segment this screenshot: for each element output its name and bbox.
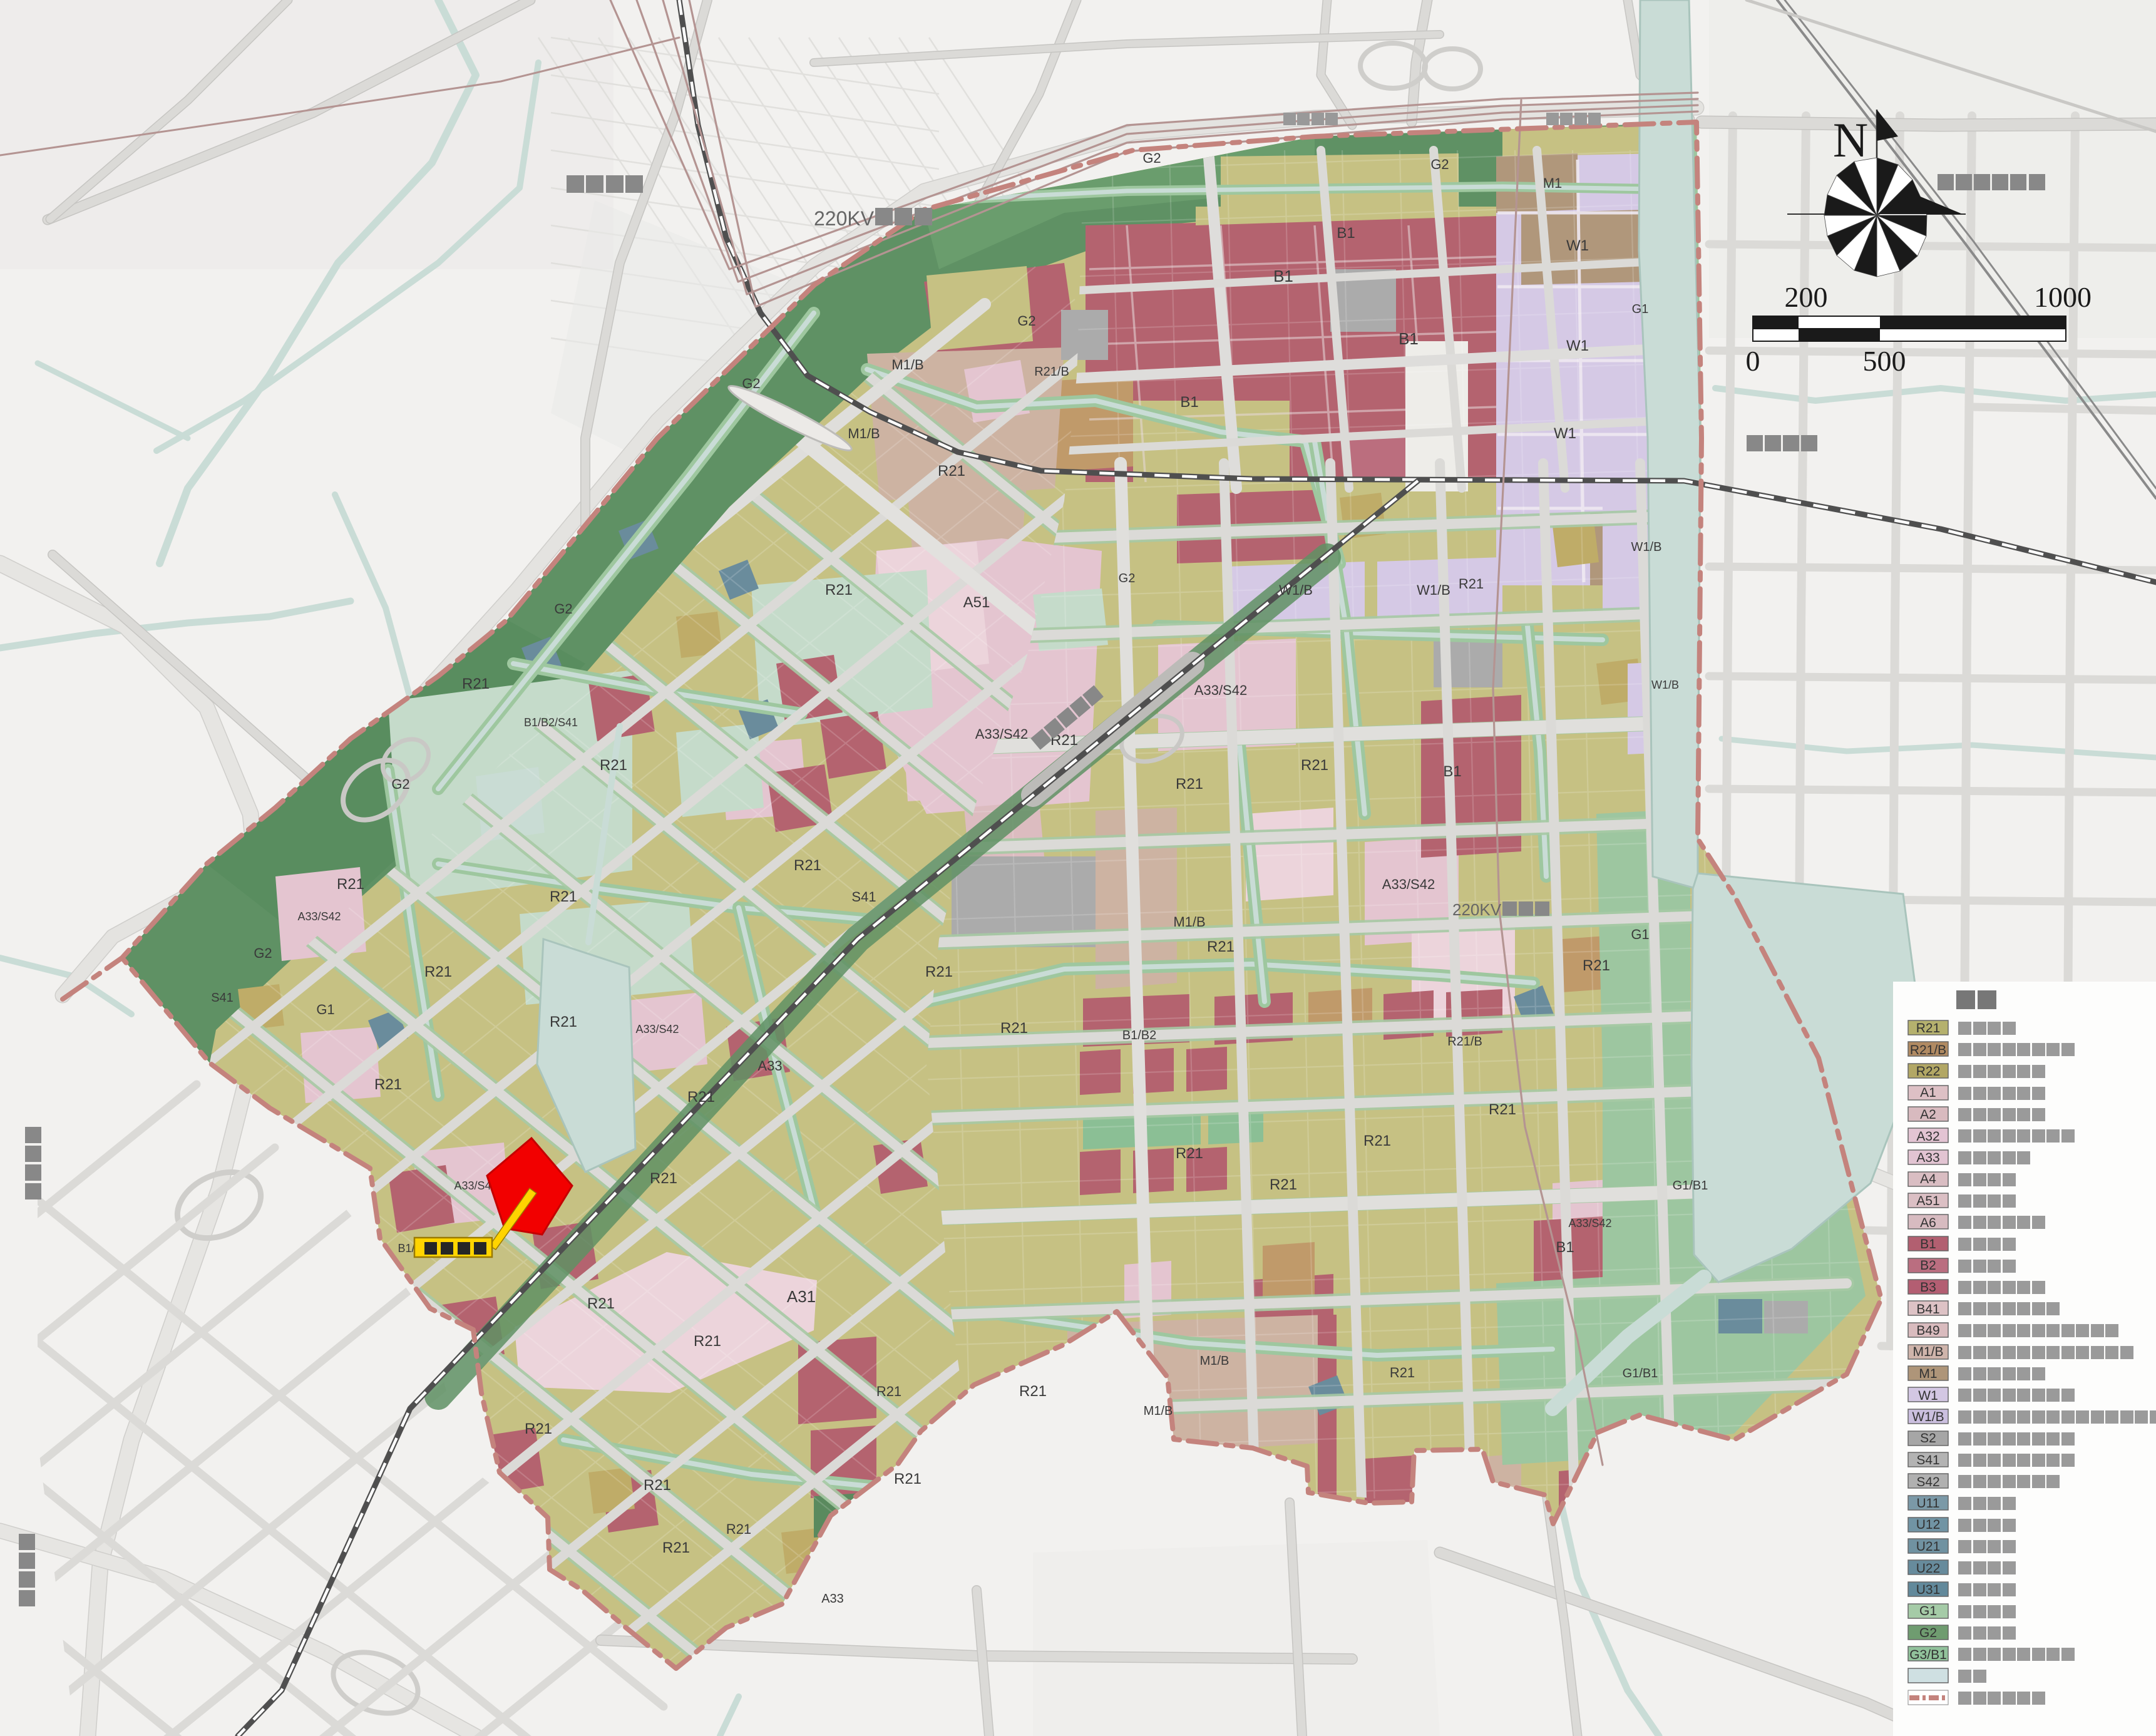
svg-text:G1: G1 xyxy=(316,1002,334,1017)
svg-text:R21: R21 xyxy=(938,463,965,480)
svg-text:R21: R21 xyxy=(662,1539,690,1556)
svg-text:G2: G2 xyxy=(1142,150,1161,166)
svg-text:500: 500 xyxy=(1863,345,1906,377)
svg-text:A32: A32 xyxy=(1916,1129,1939,1144)
svg-text:M1: M1 xyxy=(1543,175,1563,191)
svg-text:R21: R21 xyxy=(1270,1176,1297,1193)
svg-text:G1/B1: G1/B1 xyxy=(1673,1179,1708,1193)
svg-text:A51: A51 xyxy=(1916,1194,1939,1208)
svg-text:A33/S42: A33/S42 xyxy=(635,1023,679,1035)
svg-text:B1: B1 xyxy=(1920,1237,1936,1251)
svg-text:S41: S41 xyxy=(851,889,876,905)
svg-text:R21: R21 xyxy=(1301,757,1328,774)
svg-text:A33/S42: A33/S42 xyxy=(297,910,341,923)
svg-text:R21: R21 xyxy=(687,1089,715,1106)
svg-text:G1: G1 xyxy=(1631,927,1649,942)
svg-text:R21: R21 xyxy=(424,963,452,980)
svg-text:R21: R21 xyxy=(694,1333,721,1350)
svg-text:M1/B: M1/B xyxy=(1200,1354,1229,1368)
svg-text:G1/B1: G1/B1 xyxy=(1623,1367,1658,1380)
svg-text:W1/B: W1/B xyxy=(1651,679,1679,691)
svg-text:M1/B: M1/B xyxy=(1144,1404,1173,1418)
svg-text:R21: R21 xyxy=(525,1420,552,1437)
svg-text:N: N xyxy=(1833,113,1868,167)
svg-text:W1/B: W1/B xyxy=(1912,1410,1944,1424)
svg-text:A1: A1 xyxy=(1920,1086,1936,1100)
svg-text:R21: R21 xyxy=(374,1076,402,1093)
svg-text:R21: R21 xyxy=(1459,576,1484,592)
svg-text:R21: R21 xyxy=(1489,1101,1516,1118)
svg-text:R21: R21 xyxy=(1390,1365,1415,1380)
svg-text:M1/B: M1/B xyxy=(891,357,923,372)
svg-text:220KV: 220KV xyxy=(1452,900,1502,919)
svg-text:R21: R21 xyxy=(600,757,627,774)
svg-text:W1: W1 xyxy=(1566,337,1589,354)
svg-text:R21/B: R21/B xyxy=(1910,1043,1946,1057)
svg-text:R21: R21 xyxy=(1176,776,1203,793)
svg-text:R21: R21 xyxy=(876,1384,901,1399)
svg-text:R21: R21 xyxy=(1583,957,1610,974)
svg-text:B2: B2 xyxy=(1920,1258,1936,1273)
svg-text:R21/B: R21/B xyxy=(1034,365,1069,379)
svg-text:A2: A2 xyxy=(1920,1107,1936,1122)
svg-text:R21: R21 xyxy=(894,1471,921,1487)
svg-text:U22: U22 xyxy=(1916,1561,1941,1576)
svg-text:A6: A6 xyxy=(1920,1216,1936,1230)
svg-text:M1/B: M1/B xyxy=(1173,914,1205,930)
svg-text:R21: R21 xyxy=(1207,938,1235,955)
svg-text:B49: B49 xyxy=(1916,1323,1939,1338)
svg-text:S41: S41 xyxy=(211,991,234,1005)
svg-text:G2: G2 xyxy=(391,776,409,792)
svg-text:S41: S41 xyxy=(1916,1453,1939,1467)
svg-text:W1: W1 xyxy=(1554,425,1576,442)
svg-text:G1: G1 xyxy=(1632,302,1649,316)
svg-text:G2: G2 xyxy=(554,601,572,617)
svg-text:M1/B: M1/B xyxy=(1912,1345,1943,1359)
svg-text:U21: U21 xyxy=(1916,1539,1941,1554)
svg-text:G2: G2 xyxy=(254,945,272,961)
svg-text:G2: G2 xyxy=(1119,572,1136,585)
svg-text:A33/S42: A33/S42 xyxy=(1194,682,1247,698)
svg-text:R21: R21 xyxy=(1176,1145,1203,1162)
svg-text:R22: R22 xyxy=(1916,1064,1941,1079)
svg-text:W1: W1 xyxy=(1918,1389,1938,1403)
svg-text:G2: G2 xyxy=(742,376,760,391)
svg-text:200: 200 xyxy=(1785,281,1828,313)
svg-text:B1: B1 xyxy=(1337,225,1355,242)
svg-text:R21: R21 xyxy=(1019,1383,1047,1400)
svg-text:R21: R21 xyxy=(587,1295,615,1312)
svg-text:R21: R21 xyxy=(726,1521,751,1537)
svg-text:R21: R21 xyxy=(925,963,953,980)
svg-text:M1: M1 xyxy=(1919,1367,1937,1381)
svg-text:R21: R21 xyxy=(825,582,853,598)
svg-text:B1: B1 xyxy=(1399,329,1419,348)
svg-text:B1: B1 xyxy=(1443,763,1461,780)
svg-text:R21/B: R21/B xyxy=(1447,1035,1482,1049)
svg-text:U31: U31 xyxy=(1916,1583,1941,1597)
svg-text:W1/B: W1/B xyxy=(1631,540,1662,554)
svg-text:B1/B2/S41: B1/B2/S41 xyxy=(524,716,578,729)
svg-text:G2: G2 xyxy=(1919,1626,1937,1640)
svg-text:220KV: 220KV xyxy=(814,207,875,230)
svg-text:R21: R21 xyxy=(462,675,490,692)
svg-text:A33/S42: A33/S42 xyxy=(975,726,1028,742)
svg-text:B1: B1 xyxy=(1180,394,1198,411)
svg-text:R21: R21 xyxy=(550,888,577,905)
svg-text:R21: R21 xyxy=(1916,1021,1941,1035)
svg-text:W1: W1 xyxy=(1566,237,1589,254)
svg-text:A33: A33 xyxy=(821,1592,844,1606)
svg-text:0: 0 xyxy=(1746,345,1760,377)
svg-text:R21: R21 xyxy=(794,857,821,874)
svg-text:U11: U11 xyxy=(1917,1496,1940,1511)
svg-text:A33/S42: A33/S42 xyxy=(1382,876,1435,892)
svg-text:R21: R21 xyxy=(337,876,364,893)
svg-text:S2: S2 xyxy=(1920,1431,1936,1446)
svg-text:A33/S42: A33/S42 xyxy=(1568,1217,1611,1230)
svg-text:U12: U12 xyxy=(1916,1518,1941,1532)
svg-text:A31: A31 xyxy=(787,1287,816,1306)
svg-text:B41: B41 xyxy=(1916,1302,1939,1317)
svg-text:G1: G1 xyxy=(1919,1604,1937,1618)
svg-text:A33: A33 xyxy=(1916,1151,1939,1165)
svg-text:G2: G2 xyxy=(1017,313,1035,329)
svg-text:R21: R21 xyxy=(550,1014,577,1030)
svg-text:G2: G2 xyxy=(1430,157,1449,172)
svg-text:M1/B: M1/B xyxy=(848,426,880,441)
svg-text:B1/B2: B1/B2 xyxy=(1122,1029,1156,1042)
svg-text:W1/B: W1/B xyxy=(1417,582,1450,598)
svg-text:B3: B3 xyxy=(1920,1280,1936,1295)
svg-text:R21: R21 xyxy=(1363,1133,1391,1149)
svg-text:A4: A4 xyxy=(1920,1172,1936,1186)
svg-text:A33: A33 xyxy=(757,1058,782,1074)
svg-text:G3/B1: G3/B1 xyxy=(1909,1648,1947,1662)
svg-text:A51: A51 xyxy=(963,594,990,611)
svg-text:R21: R21 xyxy=(1000,1020,1028,1037)
svg-text:R21: R21 xyxy=(650,1170,677,1187)
svg-text:W1/B: W1/B xyxy=(1279,582,1313,598)
svg-text:B1: B1 xyxy=(1556,1239,1574,1256)
svg-text:1000: 1000 xyxy=(2034,281,2092,313)
svg-text:S42: S42 xyxy=(1916,1475,1939,1489)
svg-text:B1: B1 xyxy=(1273,267,1293,285)
svg-text:R21: R21 xyxy=(644,1477,671,1494)
